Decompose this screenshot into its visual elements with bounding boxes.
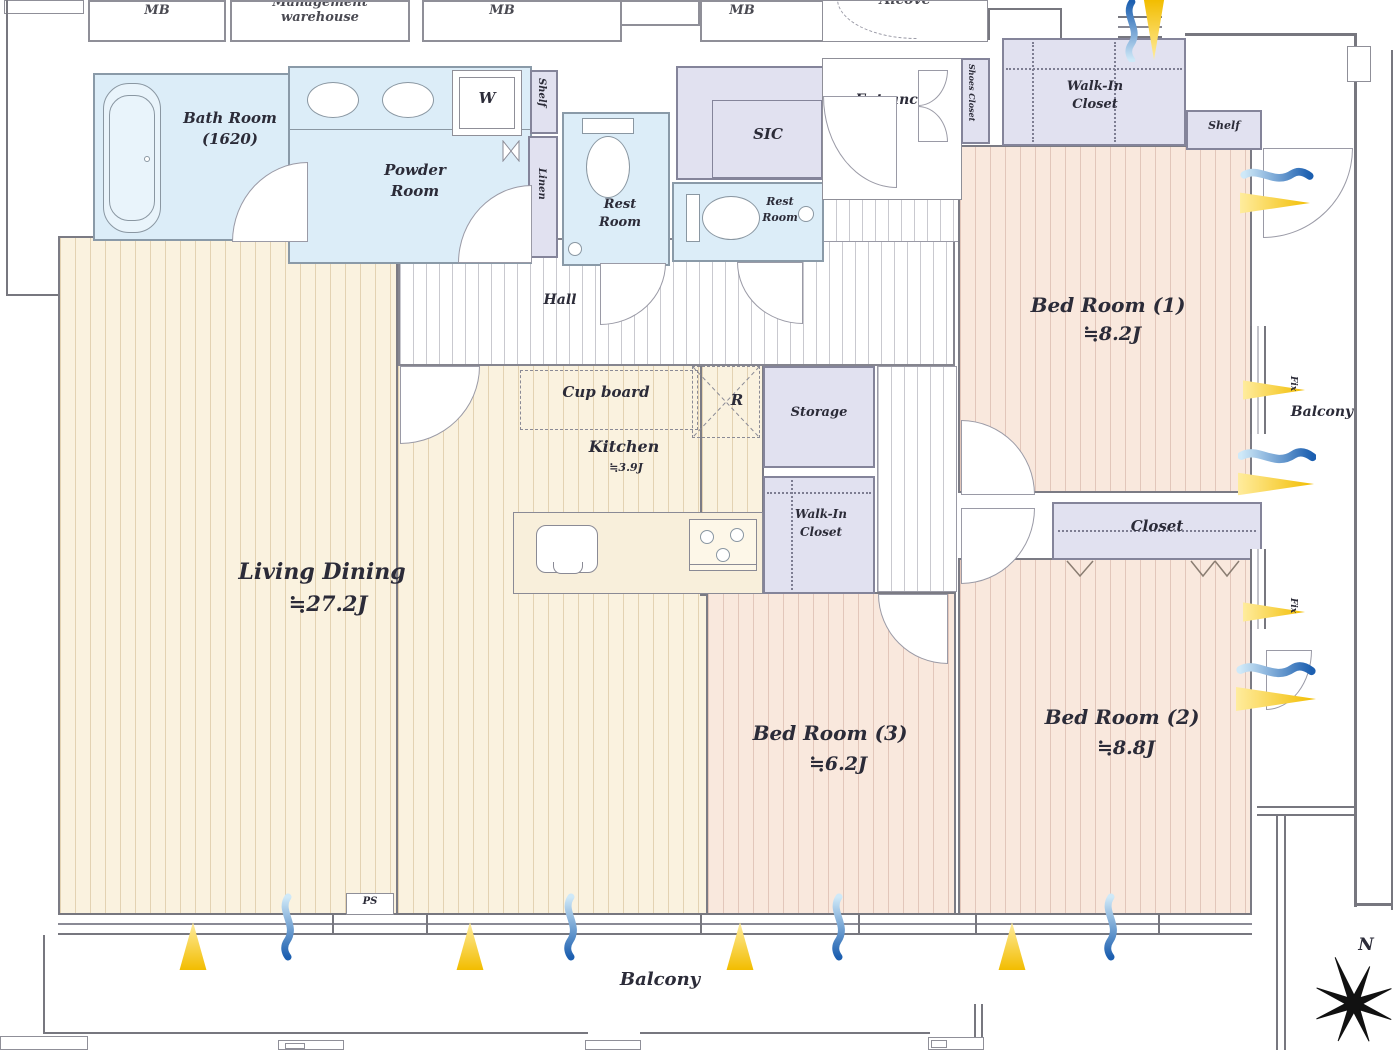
toilet-tank-icon: [582, 118, 634, 134]
mb-label-3: MB: [729, 4, 754, 19]
closet-pleat-icon: [1190, 560, 1242, 578]
bath-room-label: Bath Room: [183, 110, 277, 127]
corridor-floor: [877, 366, 957, 592]
window-mullion: [975, 913, 977, 935]
fix-window-label: Fix: [1288, 376, 1297, 391]
walk-in-closet-top-label-1: Walk-In: [1067, 80, 1123, 95]
closet-label: Closet: [1131, 518, 1184, 535]
mb-box-2: [422, 0, 622, 42]
fix-window-label: Fix: [1288, 598, 1297, 613]
closet-pleat-icon: [1066, 560, 1096, 578]
powder-room-label-1: Powder: [384, 162, 446, 179]
cross-icon: [693, 367, 759, 437]
mb-label-1: MB: [144, 4, 169, 19]
neighbor-box: [0, 1036, 88, 1050]
shoes-closet-label: Shoes Closet: [968, 64, 976, 121]
sink-icon: [307, 82, 359, 118]
refrigerator-label: R: [731, 392, 743, 409]
balcony-wall: [43, 1032, 588, 1034]
sic-box: [676, 66, 824, 180]
refrigerator-box: [692, 366, 760, 438]
alcove-door-arc: [837, 0, 917, 39]
wall-segment: [1354, 903, 1393, 906]
window-mullion: [332, 913, 334, 935]
wind-flow-icon: [1120, 0, 1142, 62]
balcony-wall: [1257, 814, 1355, 816]
rest-room-2-label-2: Room: [762, 212, 797, 225]
wall-segment: [1276, 816, 1278, 1050]
balcony-wall: [1257, 806, 1355, 808]
bedroom2-label: Bed Room (2): [1045, 706, 1200, 729]
cupboard-label: Cup board: [562, 384, 649, 401]
walk-in-closet-mid-label-1: Walk-In: [795, 508, 847, 522]
folding-door-icon: [502, 140, 520, 162]
balcony-corner-box: [928, 1037, 984, 1050]
wind-flow-icon: [1240, 164, 1314, 188]
compass-north-label: N: [1358, 936, 1374, 956]
powder-room-label-2: Room: [391, 183, 439, 200]
balcony-bottom-label: Balcony: [620, 970, 700, 991]
kitchen-label: Kitchen: [589, 438, 660, 456]
bedroom1-area-label: ≒8.2J: [1083, 324, 1141, 346]
drain-icon: [798, 206, 814, 222]
walk-in-closet-mid-label-2: Closet: [800, 526, 842, 540]
wall-segment: [988, 8, 990, 40]
kitchen-sink-icon: [536, 525, 598, 573]
living-dining-area-label: ≒27.2J: [289, 592, 368, 616]
wind-flow-icon: [276, 893, 298, 961]
rest-room-2: [672, 182, 824, 262]
mb-label-2: MB: [489, 4, 514, 19]
wind-flow-icon: [1099, 893, 1121, 961]
shelf-top-label: Shelf: [1208, 120, 1240, 133]
bedroom3-label: Bed Room (3): [753, 722, 908, 745]
neighbor-box: [278, 1040, 344, 1050]
wall-outer-right: [1354, 33, 1357, 907]
entrance-step-floor: [822, 196, 962, 242]
wall-step-box: [620, 0, 700, 26]
wall-segment: [988, 8, 1062, 10]
toilet-icon: [702, 196, 760, 240]
kitchen-counter: [513, 512, 763, 594]
washer-label: W: [479, 90, 496, 107]
wall-outer-left-step: [6, 294, 60, 296]
rest-room-1: [562, 112, 670, 266]
sink-icon: [382, 82, 434, 118]
living-dining-floor-2: [396, 364, 708, 916]
compass-rose-icon: [1302, 944, 1400, 1050]
window-band-bottom: [58, 913, 1252, 935]
balcony-partition: [981, 1004, 983, 1037]
wind-flow-icon: [1236, 658, 1316, 684]
mb-box-3: [700, 0, 832, 42]
balcony-door-arc: [1263, 148, 1353, 238]
rest-room-2-label-1: Rest: [766, 196, 793, 209]
balcony-right-label: Balcony: [1291, 404, 1353, 420]
bedroom1-label: Bed Room (1): [1031, 294, 1186, 317]
ps-label: PS: [363, 896, 378, 908]
wind-flow-icon: [827, 893, 849, 961]
walk-in-closet-top-label-2: Closet: [1072, 98, 1118, 113]
stove-icon: [689, 519, 757, 571]
window-mullion: [700, 913, 702, 935]
window-mullion: [858, 913, 860, 935]
balcony-wall: [640, 1032, 930, 1034]
toilet-icon: [586, 136, 630, 198]
wall-segment: [1284, 816, 1286, 1050]
toilet-tank-icon: [686, 194, 700, 242]
neighbor-box: [4, 0, 84, 14]
floor-plan: MB Management warehouse MB MB Alcove Bat…: [0, 0, 1400, 1050]
wall-outer-left: [6, 0, 8, 296]
rest-room-1-label-2: Room: [599, 216, 641, 231]
bedroom3-area-label: ≒6.2J: [809, 754, 867, 776]
bathtub-icon: [103, 83, 161, 233]
rest-room-1-label-1: Rest: [604, 198, 636, 213]
kitchen-area-label: ≒3.9J: [609, 462, 643, 475]
linen-label: Linen: [536, 168, 546, 200]
window-mullion: [426, 913, 428, 935]
neighbor-box: [585, 1040, 641, 1050]
hall-label: Hall: [544, 292, 577, 308]
wind-flow-icon: [559, 893, 581, 961]
management-warehouse-box: Management warehouse: [230, 0, 410, 42]
drain-icon: [568, 242, 582, 256]
window: [1250, 326, 1266, 434]
wall-segment: [1060, 8, 1062, 40]
bath-room-size-label: (1620): [202, 131, 258, 148]
living-dining-label: Living Dining: [238, 560, 405, 585]
window-mullion: [1158, 913, 1160, 935]
bedroom2-area-label: ≒8.8J: [1097, 738, 1155, 760]
management-warehouse-label: Management warehouse: [245, 0, 395, 26]
balcony-wall: [43, 935, 45, 1034]
alcove-box: Alcove: [822, 0, 988, 42]
wall-top-right: [1185, 33, 1355, 36]
shelf-left-label: Shelf: [536, 78, 546, 107]
balcony-partition: [974, 1004, 976, 1037]
wall-detail-box: [1347, 46, 1371, 82]
sic-label: SIC: [753, 126, 783, 143]
storage-label: Storage: [791, 406, 848, 421]
wind-flow-icon: [1238, 444, 1316, 470]
wall-outer-right-2: [1391, 50, 1393, 910]
